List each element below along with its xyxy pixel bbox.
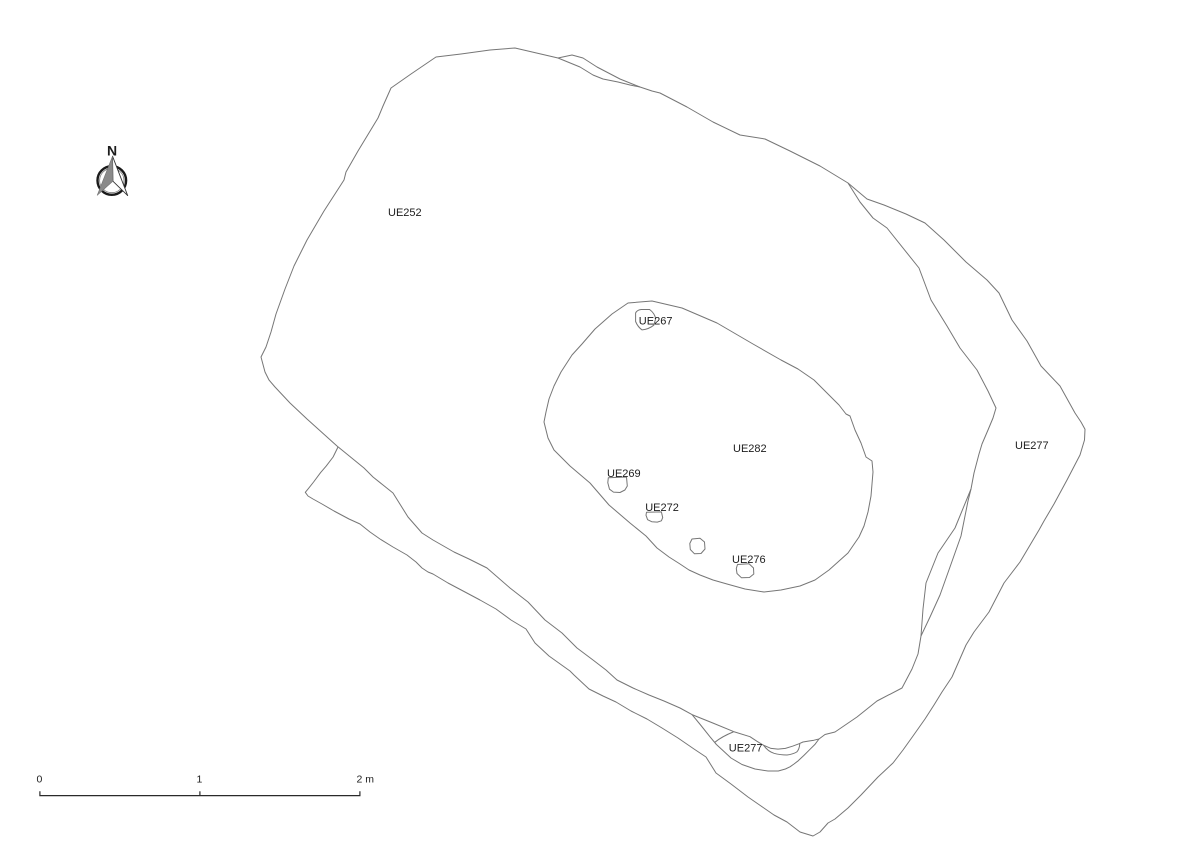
svg-text:UE277: UE277	[729, 743, 763, 755]
svg-text:0: 0	[37, 774, 43, 786]
svg-text:UE277: UE277	[1015, 440, 1049, 452]
svg-text:UE272: UE272	[645, 502, 679, 514]
svg-text:UE276: UE276	[732, 554, 766, 566]
svg-text:UE282: UE282	[733, 443, 767, 455]
svg-text:2 m: 2 m	[357, 774, 375, 786]
svg-text:1: 1	[197, 774, 203, 786]
svg-text:UE267: UE267	[639, 316, 673, 328]
svg-text:UE269: UE269	[607, 468, 641, 480]
svg-text:UE252: UE252	[388, 207, 422, 219]
